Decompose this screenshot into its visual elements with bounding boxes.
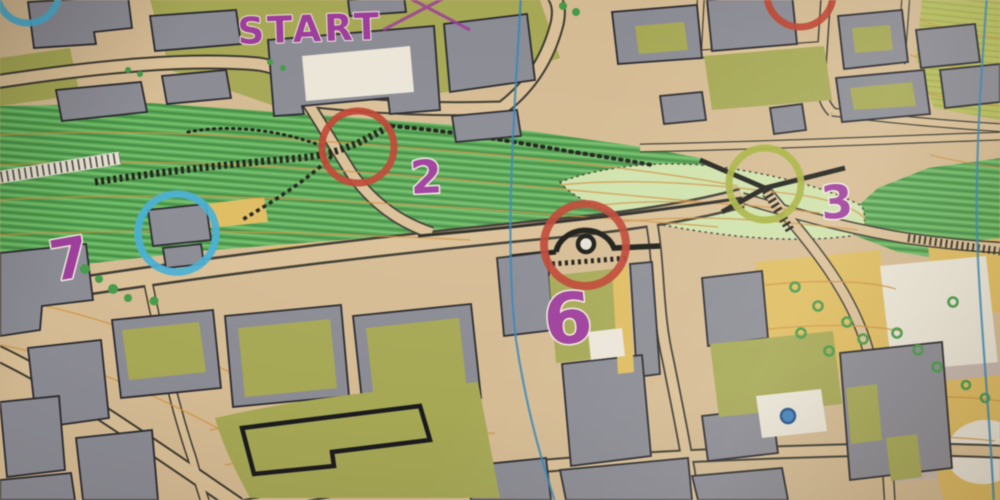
start-label: START [237, 5, 383, 53]
control-number-6: 6 [540, 276, 596, 362]
control6-ring-feature [578, 236, 594, 252]
control-number-3: 3 [819, 174, 855, 230]
fountain-icon [781, 409, 795, 423]
control-number-2: 2 [409, 149, 444, 205]
map-canvas: START 2 3 6 7 [0, 0, 1000, 500]
orienteering-map-photo: START 2 3 6 7 [0, 0, 1000, 500]
